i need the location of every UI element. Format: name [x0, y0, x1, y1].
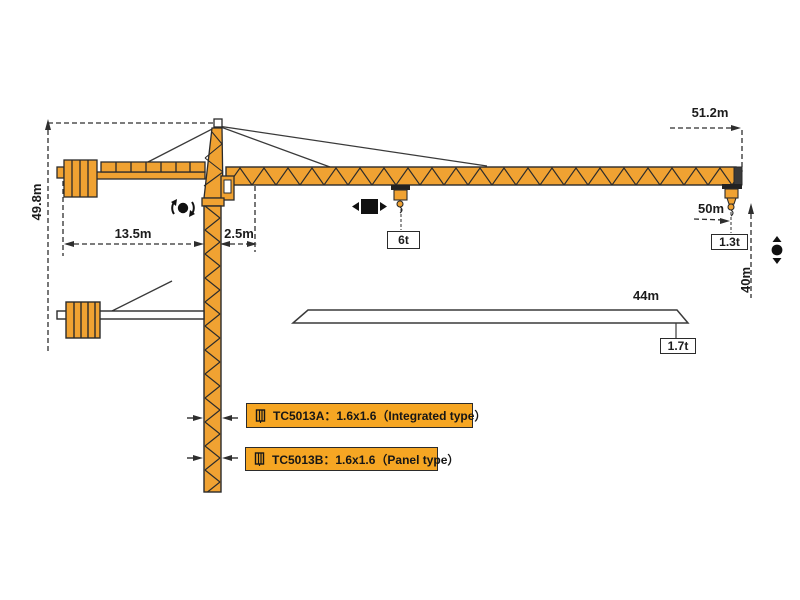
variant-label-tc5013a: TC5013A：1.6x1.6（Integrated type） — [246, 403, 473, 428]
trolley-travel-symbol — [352, 199, 387, 214]
crane-diagram: 49.8m 13.5m 2.5m 51.2m 50m 40m 44m 6t 1.… — [0, 0, 800, 600]
hook-mid — [397, 201, 403, 207]
tower-mast — [204, 206, 221, 492]
dim-hook-height: 40m — [739, 262, 753, 298]
slewing-collar — [202, 198, 224, 206]
rotation-symbol — [171, 199, 195, 217]
cab-window — [224, 180, 231, 193]
dim-jib50-lead — [694, 219, 724, 220]
trolley-mid — [391, 185, 410, 213]
mast-section-icon — [253, 452, 266, 466]
dim-tower-height: 49.8m — [30, 179, 44, 225]
dim-jib-length-50: 50m — [693, 202, 729, 216]
counterweight-tab — [57, 167, 64, 178]
hoist-up-down-symbol — [772, 236, 783, 264]
dim-counterjib-length: 13.5m — [106, 227, 160, 241]
apex-pin — [214, 119, 222, 127]
jib-end-cap — [734, 167, 742, 185]
load-max-mid: 6t — [387, 231, 420, 249]
dim-rear-offset: 2.5m — [216, 227, 262, 241]
variant-label-text: TC5013B：1.6x1.6（Panel type） — [272, 451, 459, 468]
alt-jib-44m — [293, 310, 688, 338]
load-tip-44m: 1.7t — [660, 338, 696, 354]
counter-jib — [57, 160, 205, 197]
load-tip-50m: 1.3t — [711, 234, 748, 250]
tie-rods — [148, 126, 487, 167]
dim-jib-length-44: 44m — [628, 289, 664, 303]
crane-structure-svg — [0, 0, 800, 600]
variant-label-tc5013b: TC5013B：1.6x1.6（Panel type） — [245, 447, 438, 471]
alt-counter-jib — [57, 281, 204, 338]
mast-section-icon — [254, 409, 267, 423]
variant-label-text: TC5013A：1.6x1.6（Integrated type） — [273, 407, 486, 424]
dim-overall-radius: 51.2m — [684, 106, 736, 120]
main-jib — [226, 167, 742, 185]
